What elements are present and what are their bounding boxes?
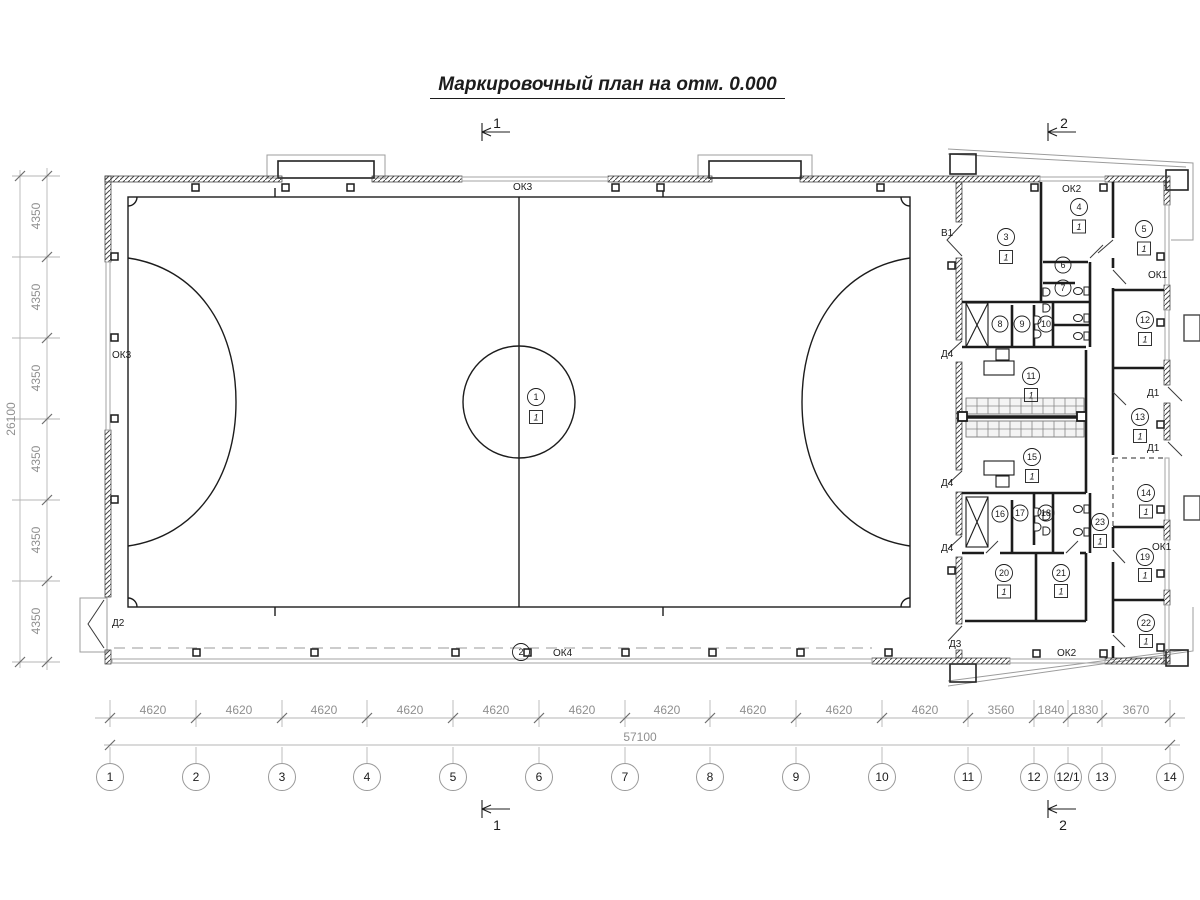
svg-text:14: 14 xyxy=(1141,488,1151,498)
grid-number: 3 xyxy=(279,770,286,784)
svg-text:10: 10 xyxy=(1041,319,1051,329)
grid-number: 6 xyxy=(536,770,543,784)
dim-value: 1830 xyxy=(1072,703,1099,717)
svg-text:1: 1 xyxy=(533,413,538,423)
bottom-dimensions: 4620 4620 4620 4620 4620 4620 4620 4620 … xyxy=(95,700,1185,763)
svg-text:1: 1 xyxy=(1141,244,1146,254)
svg-text:2: 2 xyxy=(518,647,523,657)
room-marker-1: 1 1 xyxy=(528,389,545,424)
room-marker-7: 7 xyxy=(1055,280,1071,296)
room-marker-3: 3 1 xyxy=(998,229,1015,264)
window-label: ОК3 xyxy=(513,182,533,193)
room-marker-9: 9 xyxy=(1014,316,1030,332)
room-marker-4: 4 1 xyxy=(1071,199,1088,234)
room-marker-8: 8 xyxy=(992,316,1008,332)
dim-total-width: 57100 xyxy=(623,730,657,744)
svg-text:15: 15 xyxy=(1027,452,1037,462)
section-mark-top-2: 2 xyxy=(1048,115,1076,141)
svg-text:1: 1 xyxy=(493,115,501,131)
svg-text:12: 12 xyxy=(1140,315,1150,325)
room-marker-14: 14 1 xyxy=(1138,485,1155,519)
grid-number: 4 xyxy=(364,770,371,784)
grid-number: 14 xyxy=(1163,770,1177,784)
room-marker-15: 15 1 xyxy=(1024,449,1041,483)
svg-text:1: 1 xyxy=(1142,335,1147,345)
grid-number: 11 xyxy=(962,770,975,784)
dim-value: 3560 xyxy=(988,703,1015,717)
grid-number: 5 xyxy=(450,770,457,784)
door-label: Д4 xyxy=(941,478,954,489)
grid-number: 7 xyxy=(622,770,629,784)
dim-value: 4350 xyxy=(29,364,43,391)
svg-text:17: 17 xyxy=(1015,508,1025,518)
dim-total-height: 26100 xyxy=(4,402,18,436)
room-marker-6: 6 xyxy=(1055,257,1071,273)
svg-text:9: 9 xyxy=(1019,319,1024,329)
svg-text:1: 1 xyxy=(1058,587,1063,597)
floor-plan-svg: 1 1 2 3 1 4 1 5 1 xyxy=(0,0,1200,900)
grid-number: 10 xyxy=(875,770,889,784)
dim-value: 4620 xyxy=(397,703,424,717)
door-label: Д1 xyxy=(1147,443,1160,454)
grid-number: 12 xyxy=(1027,770,1041,784)
svg-text:22: 22 xyxy=(1141,618,1151,628)
grid-number: 13 xyxy=(1095,770,1109,784)
svg-text:21: 21 xyxy=(1056,568,1066,578)
svg-text:8: 8 xyxy=(997,319,1002,329)
svg-text:1: 1 xyxy=(1001,587,1006,597)
window-label: ОК2 xyxy=(1057,648,1077,659)
svg-text:1: 1 xyxy=(1143,637,1148,647)
dim-value: 4620 xyxy=(569,703,596,717)
dim-value: 3670 xyxy=(1123,703,1150,717)
svg-text:1: 1 xyxy=(1137,432,1142,442)
window-label: ОК3 xyxy=(112,350,132,361)
svg-text:20: 20 xyxy=(999,568,1009,578)
dim-value: 4620 xyxy=(140,703,167,717)
svg-text:1: 1 xyxy=(1076,222,1081,232)
dim-value: 4620 xyxy=(826,703,853,717)
svg-text:11: 11 xyxy=(1026,371,1035,381)
window-label: ОК1 xyxy=(1152,542,1172,553)
svg-text:2: 2 xyxy=(1059,817,1067,833)
svg-text:1: 1 xyxy=(1028,391,1033,401)
section-mark-bottom-1: 1 xyxy=(482,800,510,833)
svg-text:19: 19 xyxy=(1140,552,1150,562)
svg-text:3: 3 xyxy=(1003,232,1008,242)
door-label: Д4 xyxy=(941,543,954,554)
dim-value: 4620 xyxy=(740,703,767,717)
door-label: Д4 xyxy=(941,349,954,360)
svg-text:1: 1 xyxy=(533,392,538,402)
svg-text:16: 16 xyxy=(995,509,1005,519)
svg-text:1: 1 xyxy=(1097,537,1102,547)
dim-value: 4620 xyxy=(912,703,939,717)
room-marker-16: 16 xyxy=(992,506,1008,522)
grid-number: 2 xyxy=(193,770,200,784)
room-marker-21: 21 1 xyxy=(1053,565,1070,598)
dim-value: 1840 xyxy=(1038,703,1065,717)
room-marker-11: 11 1 xyxy=(1023,368,1040,402)
svg-text:1: 1 xyxy=(1003,253,1008,263)
sports-field xyxy=(128,188,910,616)
door-label: Д3 xyxy=(949,639,962,650)
dim-value: 4620 xyxy=(311,703,338,717)
window-label: ОК1 xyxy=(1148,270,1168,281)
grid-number: 8 xyxy=(707,770,714,784)
svg-text:5: 5 xyxy=(1141,224,1146,234)
window-label: ОК2 xyxy=(1062,184,1082,195)
room-marker-13: 13 1 xyxy=(1132,409,1149,443)
door-label: В1 xyxy=(941,228,954,239)
svg-text:23: 23 xyxy=(1095,517,1105,527)
drawing-page: Маркировочный план на отм. 0.000 xyxy=(0,0,1200,900)
svg-text:1: 1 xyxy=(493,817,501,833)
left-dimensions: 4350 4350 4350 4350 4350 4350 26100 xyxy=(4,168,60,670)
svg-text:7: 7 xyxy=(1060,283,1065,293)
room-marker-17: 17 xyxy=(1012,505,1028,521)
svg-text:1: 1 xyxy=(1142,571,1147,581)
dim-value: 4350 xyxy=(29,526,43,553)
room-marker-20: 20 1 xyxy=(996,565,1013,599)
svg-text:6: 6 xyxy=(1060,260,1065,270)
dim-value: 4620 xyxy=(483,703,510,717)
grid-bubbles: 1 2 3 4 5 6 7 8 9 10 11 12 12/1 13 14 xyxy=(97,764,1184,791)
dim-value: 4350 xyxy=(29,445,43,472)
room-marker-22: 22 1 xyxy=(1138,615,1155,648)
room-marker-23: 23 1 xyxy=(1092,514,1109,548)
window-glazing xyxy=(106,177,1169,663)
room-marker-5: 5 1 xyxy=(1136,221,1153,256)
grid-number: 12/1 xyxy=(1056,770,1080,784)
dim-value: 4620 xyxy=(654,703,681,717)
room-marker-12: 12 1 xyxy=(1137,312,1154,346)
svg-text:2: 2 xyxy=(1060,115,1068,131)
grid-number: 9 xyxy=(793,770,800,784)
grid-number: 1 xyxy=(107,770,114,784)
door-label: Д2 xyxy=(112,618,125,629)
door-label: Д1 xyxy=(1147,388,1160,399)
dim-value: 4350 xyxy=(29,202,43,229)
room-marker-10: 10 xyxy=(1038,316,1054,332)
section-mark-top-1: 1 xyxy=(482,115,510,141)
svg-text:18: 18 xyxy=(1041,508,1051,518)
dim-value: 4350 xyxy=(29,283,43,310)
svg-text:4: 4 xyxy=(1076,202,1081,212)
svg-text:1: 1 xyxy=(1143,507,1148,517)
window-label: ОК4 xyxy=(553,648,573,659)
section-mark-bottom-2: 2 xyxy=(1048,800,1076,833)
room-marker-19: 19 1 xyxy=(1137,549,1154,582)
dim-value: 4620 xyxy=(226,703,253,717)
dim-value: 4350 xyxy=(29,607,43,634)
svg-text:13: 13 xyxy=(1135,412,1145,422)
section-marks: 1 2 1 2 xyxy=(482,115,1076,833)
svg-text:1: 1 xyxy=(1029,472,1034,482)
